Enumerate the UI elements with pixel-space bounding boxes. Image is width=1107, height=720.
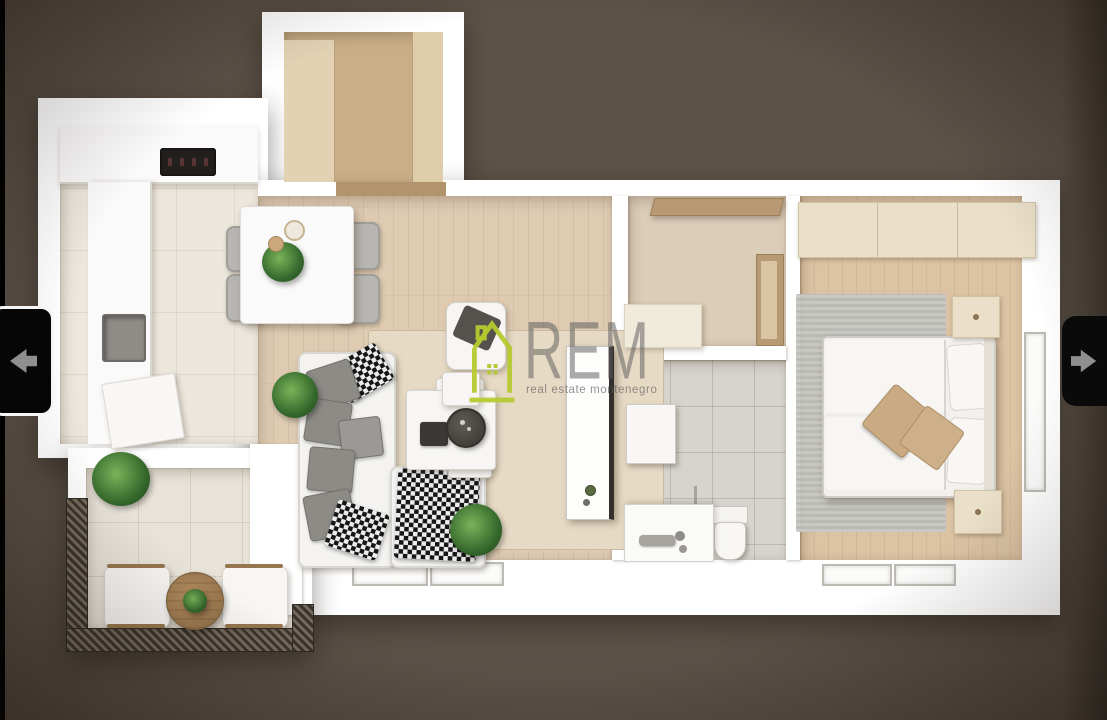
- door-handle: [583, 499, 590, 506]
- faucet-handle: [679, 545, 687, 553]
- arrow-right-icon: [1068, 347, 1102, 375]
- closet-wardrobe-left-panel: [284, 40, 335, 182]
- watermark-title: REM: [524, 310, 651, 392]
- hall-shelf: [650, 198, 784, 216]
- bedroom-wardrobe: [798, 202, 1036, 258]
- bedroom-window-pane-left: [822, 564, 892, 586]
- wardrobe-seam: [877, 203, 878, 257]
- balcony-railing-bottom: [66, 628, 314, 652]
- kitchen-sink: [102, 314, 146, 362]
- bathroom-cabinet: [626, 404, 676, 464]
- armchair-wood-frame: [225, 624, 283, 628]
- cooktop-knobs: [168, 158, 208, 166]
- watermark: REM real estate montenegro: [462, 310, 702, 410]
- balcony-armchair-right: [222, 566, 288, 628]
- prev-image-button[interactable]: [0, 306, 54, 416]
- faucet-handle: [675, 531, 685, 541]
- balcony-armchair-left: [104, 566, 170, 628]
- nightstand-bottom: [954, 490, 1002, 534]
- armchair-wood-frame: [107, 624, 165, 628]
- bedroom-window-pane-right: [894, 564, 956, 586]
- wardrobe-seam: [957, 203, 958, 257]
- toilet: [712, 506, 746, 558]
- nightstand-knob: [973, 314, 979, 320]
- living-plant-bottom: [450, 504, 502, 556]
- balcony-railing-right: [292, 604, 314, 652]
- toilet-bowl: [714, 522, 746, 560]
- door-handle: [585, 485, 596, 496]
- watermark-subtitle: real estate montenegro: [526, 384, 657, 396]
- nightstand-knob: [975, 509, 981, 515]
- nightstand-top: [952, 296, 1000, 338]
- hall-niche: [756, 254, 784, 346]
- living-plant-left: [272, 372, 318, 418]
- kitchen-lower-cabinet: [101, 373, 184, 450]
- next-image-button[interactable]: [1062, 316, 1107, 406]
- armchair-wood-frame: [107, 564, 165, 568]
- image-viewer: REM real estate montenegro: [0, 0, 1107, 720]
- coffee-table-tray: [420, 422, 448, 446]
- house-logo-icon: [468, 316, 516, 404]
- dining-plate: [284, 220, 305, 241]
- armchair-wood-frame: [225, 564, 283, 568]
- dining-plate: [268, 236, 284, 252]
- closet-wardrobe-right-panel: [412, 32, 443, 182]
- balcony-plant: [92, 452, 150, 506]
- kitchen-counter-top: [60, 126, 258, 184]
- bathroom-vanity: [624, 504, 714, 562]
- entry-door-threshold: [336, 182, 446, 196]
- bed-headboard: [984, 338, 994, 492]
- side-table-decor: [460, 420, 465, 425]
- faucet: [639, 535, 675, 546]
- hall-niche-inner: [761, 261, 777, 339]
- arrow-left-icon: [4, 346, 40, 376]
- round-side-table: [446, 408, 486, 448]
- balcony-round-table: [166, 572, 224, 630]
- balcony-table-plant: [183, 589, 207, 613]
- bedroom-side-window: [1024, 332, 1046, 492]
- cooktop: [160, 148, 216, 176]
- double-bed: [822, 336, 996, 498]
- sofa-cushion: [306, 446, 356, 494]
- side-table-decor: [467, 427, 471, 431]
